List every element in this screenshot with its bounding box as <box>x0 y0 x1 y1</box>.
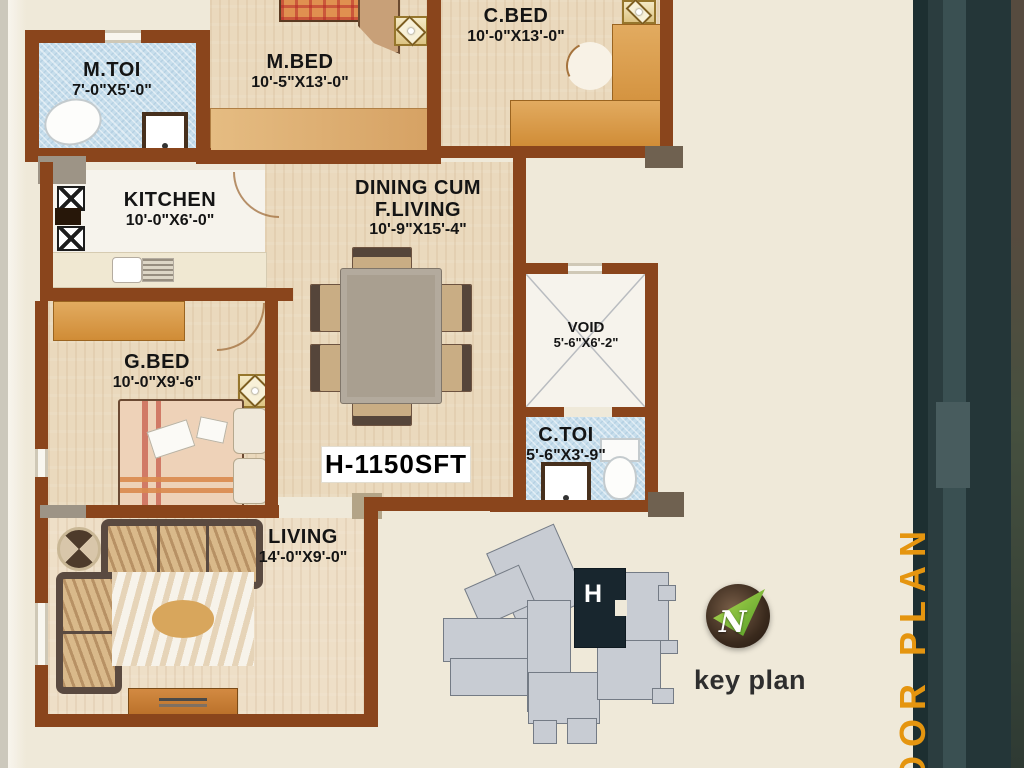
wall <box>196 30 210 162</box>
room-name: KITCHEN <box>124 190 216 212</box>
page-edge <box>0 0 8 768</box>
dining-chair-icon <box>440 344 472 392</box>
wall <box>35 518 48 603</box>
wall <box>441 146 673 158</box>
banner-vertical-text: OOR PLAN <box>892 522 934 768</box>
wall <box>612 407 645 417</box>
banner-text-wrap: OOR PLAN <box>926 414 986 768</box>
key-plan-unit-letter: H <box>584 580 602 609</box>
room-name: G.BED <box>113 352 202 374</box>
room-dims: 5'-6"X6'-2" <box>554 336 619 350</box>
rug-icon <box>112 572 254 666</box>
room-label-void: VOID 5'-6"X6'-2" <box>554 320 619 350</box>
key-plan-caption: key plan <box>694 665 806 696</box>
wall <box>40 288 293 301</box>
room-name: M.TOI <box>72 60 152 82</box>
wall <box>526 407 564 417</box>
key-plan-block <box>533 720 557 744</box>
room-name: VOID <box>554 320 619 336</box>
key-plan-block <box>652 688 674 704</box>
room-dims: 14'-0"X9'-0" <box>259 549 348 566</box>
wall <box>40 162 53 290</box>
wall <box>364 497 378 714</box>
window <box>568 263 602 274</box>
room-label-mbed: M.BED 10'-5"X13'-0" <box>251 52 349 91</box>
room-dims: 10'-0"X13'-0" <box>467 28 565 45</box>
dining-chair-icon <box>440 284 472 332</box>
room-name: C.BED <box>467 6 565 28</box>
wall <box>265 301 278 505</box>
corner-table-icon <box>57 527 101 571</box>
key-plan-block <box>567 718 597 744</box>
wall <box>25 30 105 43</box>
window <box>35 449 48 477</box>
page-edge-right <box>1011 0 1024 768</box>
wardrobe-counter-icon <box>510 100 662 148</box>
room-label-kitchen: KITCHEN 10'-0"X6'-0" <box>124 190 216 229</box>
dining-table-icon <box>340 268 442 404</box>
room-label-cbed: C.BED 10'-0"X13'-0" <box>467 6 565 45</box>
wall <box>660 0 673 148</box>
room-dims: 10'-5"X13'-0" <box>251 74 349 91</box>
unit-area-label: H-1150SFT <box>322 447 470 482</box>
wall <box>35 477 48 507</box>
room-name: M.BED <box>251 52 349 74</box>
bed-icon-gbed <box>118 399 244 511</box>
room-label-dining: DINING CUM F.LIVING 10'-9"X15'-4" <box>355 178 481 238</box>
pillow-icon <box>233 408 267 454</box>
key-plan-block <box>660 640 678 654</box>
window <box>35 603 48 665</box>
column <box>645 146 683 168</box>
page-edge-shade <box>8 0 26 768</box>
wall <box>35 301 48 449</box>
window <box>105 30 141 43</box>
room-name: LIVING <box>259 527 348 549</box>
wall <box>427 0 441 158</box>
dining-chair-icon <box>310 344 342 392</box>
wall <box>526 263 568 274</box>
room-name-2: F.LIVING <box>355 200 481 222</box>
ceiling-lamp-icon <box>394 16 428 46</box>
room-name: DINING CUM <box>355 178 481 200</box>
stove-icon <box>55 208 81 225</box>
stove-burner-icon <box>57 226 85 251</box>
rug-center-oval <box>152 600 214 638</box>
room-label-ctoi: C.TOI 5'-6"X3'-9" <box>526 425 606 464</box>
service-duct <box>40 505 86 518</box>
ceiling-lamp-icon <box>622 0 656 24</box>
wall <box>490 500 660 512</box>
key-plan-block <box>658 585 676 601</box>
room-dims: 7'-0"X5'-0" <box>72 82 152 99</box>
north-compass-icon: N <box>706 584 770 648</box>
kitchen-sink-icon <box>112 257 142 283</box>
wardrobe-icon-mbed <box>210 108 428 154</box>
toilet-icon <box>603 456 637 500</box>
room-dims: 10'-9"X15'-4" <box>355 221 481 238</box>
wall <box>602 263 645 274</box>
key-plan-block <box>528 672 600 724</box>
wall <box>196 150 441 164</box>
room-dims: 10'-0"X6'-0" <box>124 212 216 229</box>
key-plan-notch <box>615 600 627 616</box>
wall <box>645 263 658 508</box>
room-name: C.TOI <box>526 425 606 447</box>
column <box>648 492 684 517</box>
drain-board-icon <box>142 258 174 282</box>
room-dims: 5'-6"X3'-9" <box>526 447 606 464</box>
room-label-living: LIVING 14'-0"X9'-0" <box>259 527 348 566</box>
room-label-mtoi: M.TOI 7'-0"X5'-0" <box>72 60 152 99</box>
wall <box>35 714 378 727</box>
compass-letter: N <box>719 605 746 640</box>
wardrobe-icon-gbed <box>53 301 185 341</box>
room-label-gbed: G.BED 10'-0"X9'-6" <box>113 352 202 391</box>
dining-chair-icon <box>310 284 342 332</box>
wall <box>513 146 526 508</box>
floor-plan-page: M.TOI 7'-0"X5'-0" M.BED 10'-5"X13'-0" C.… <box>0 0 1024 768</box>
room-dims: 10'-0"X9'-6" <box>113 374 202 391</box>
pillow-icon <box>233 458 267 504</box>
wall <box>25 30 39 162</box>
